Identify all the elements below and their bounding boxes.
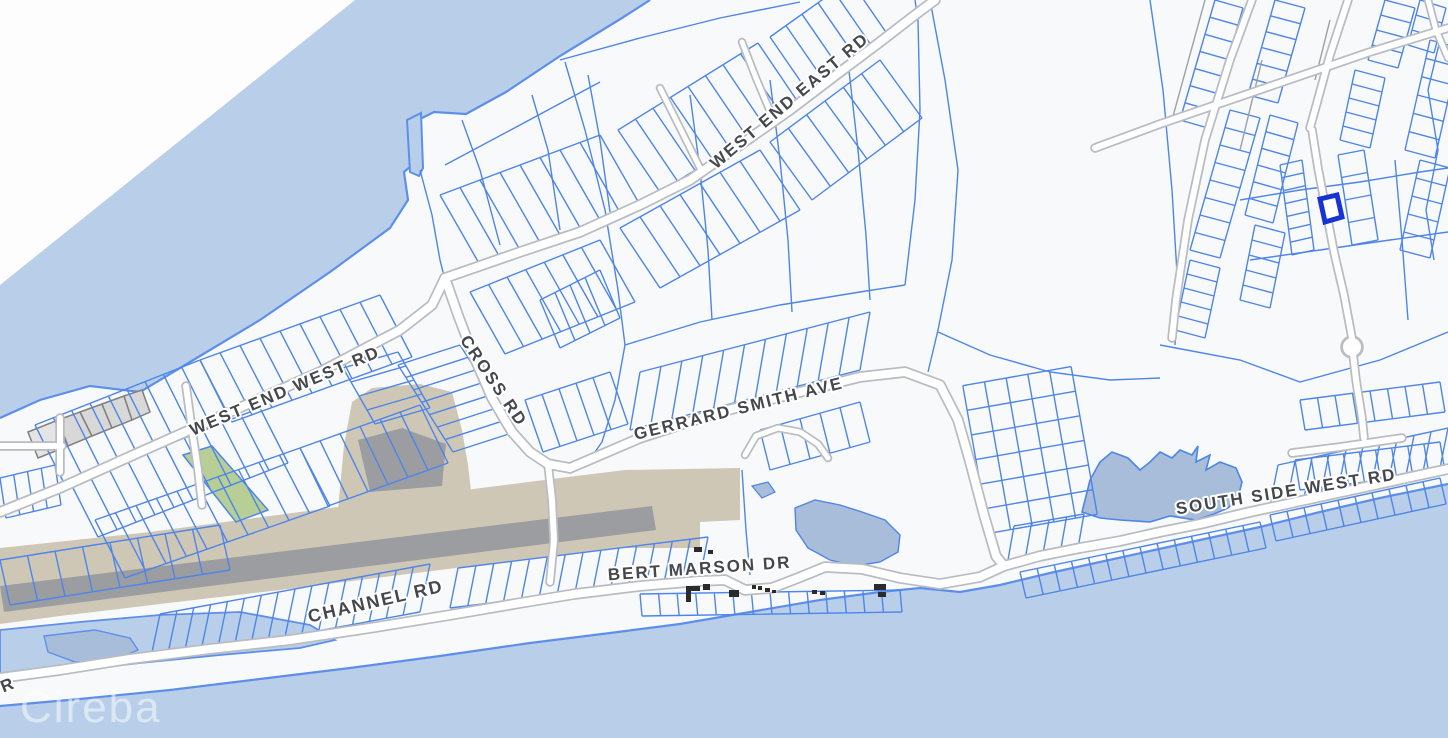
map-watermark: Cireba — [20, 683, 162, 732]
map-canvas[interactable]: WEST END EAST RD WEST END WEST RD CROSS … — [0, 0, 1448, 738]
selected-parcel-outline[interactable] — [1320, 195, 1342, 222]
coastal-inlet — [407, 113, 423, 176]
road-dead-end-bulb — [1343, 338, 1361, 356]
